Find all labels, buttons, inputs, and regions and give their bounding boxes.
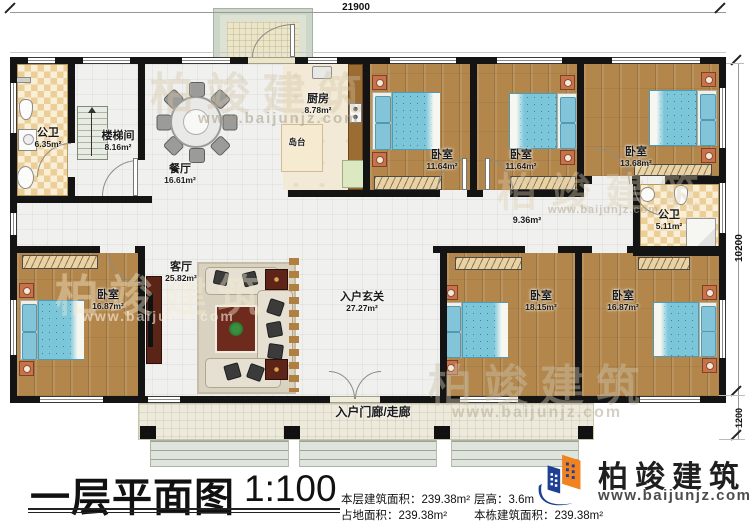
room-label-bedroom-bl: 卧室 16.87m²: [92, 289, 124, 311]
window: [40, 396, 103, 403]
room-name: 公卫: [656, 209, 682, 222]
room-label-stairs: 楼梯间 8.16m²: [102, 130, 135, 152]
porch-column: [284, 426, 300, 439]
window: [148, 396, 180, 403]
bed-pillow: [701, 306, 716, 332]
nightstand: [19, 283, 34, 298]
room-label-foyer: 入户玄关 27.27m²: [340, 291, 384, 313]
bed-pillow: [375, 123, 391, 150]
side-table: [265, 359, 288, 380]
nightstand: [560, 150, 575, 165]
title-underline: [28, 508, 340, 510]
stat-value: 239.38m²: [422, 494, 471, 506]
room-area: 9.36m²: [513, 215, 542, 225]
kitchen-sink-icon: [312, 66, 332, 79]
window: [719, 88, 726, 148]
window: [497, 57, 562, 64]
room-name: 卧室: [607, 290, 639, 303]
wall: [470, 64, 477, 197]
stove-icon: [349, 103, 362, 123]
room-area: 6.35m²: [35, 140, 62, 150]
bed-blanket: [70, 301, 84, 359]
nightstand: [702, 358, 717, 373]
room-name: 楼梯间: [102, 130, 135, 143]
window: [612, 57, 700, 64]
eave-line: [10, 52, 726, 53]
stairs-arrow: [91, 112, 92, 156]
floor-plan: 柏竣建筑 www.baijunjz.com 柏竣建筑 www.baijunjz.…: [0, 0, 750, 525]
title-scale: 1:100: [244, 468, 337, 510]
room-name: 卧室: [525, 290, 557, 303]
dimension-line: [738, 64, 739, 396]
stat-value: 239.38m²: [555, 510, 604, 522]
building-logo-icon: [536, 449, 594, 507]
room-label-island: 岛台: [288, 138, 305, 148]
room-area: 11.64m²: [505, 162, 536, 172]
room-name: 卧室: [92, 289, 124, 302]
room-label-bedroom-b1: 卧室 18.15m²: [525, 290, 557, 312]
room-label-porch: 入户门廊/走廊: [335, 406, 410, 420]
wardrobe: [374, 176, 442, 190]
bed-blanket: [426, 93, 440, 149]
stat-value: 3.6m: [509, 494, 535, 506]
brand-logo-icon: [536, 449, 594, 507]
room-name: 岛台: [288, 138, 305, 148]
room-label-bath1: 公卫 6.35m²: [35, 127, 62, 149]
dimension-ext-line: [719, 439, 745, 440]
sofa-cushion: [213, 270, 230, 287]
stat-floor-height: 层高：3.6m: [474, 491, 534, 507]
stat-label: 占地面积：: [341, 510, 399, 522]
wall: [363, 64, 370, 197]
room-name: 入户玄关: [340, 291, 384, 304]
wardrobe: [638, 257, 690, 270]
tv-icon: [148, 293, 153, 347]
page-title: 一层平面图: [30, 465, 235, 523]
wall: [558, 246, 592, 253]
bed-pillow: [701, 331, 716, 357]
room-label-corridor: 9.36m²: [513, 215, 542, 225]
sofa-cushion: [267, 343, 284, 360]
room-label-bedroom3: 卧室 13.68m²: [620, 146, 652, 168]
wall: [433, 246, 525, 253]
room-area: 25.82m²: [165, 274, 197, 284]
stat-label: 本层建筑面积：: [341, 494, 422, 506]
room-name: 公卫: [35, 127, 62, 140]
room-name: 卧室: [505, 149, 536, 162]
bed-pillow: [22, 304, 37, 332]
wall: [510, 190, 584, 197]
room-area: 16.87m²: [92, 302, 124, 312]
wall: [665, 176, 719, 184]
room-area: 18.15m²: [525, 303, 557, 313]
sink-icon: [17, 166, 34, 189]
window: [390, 57, 456, 64]
bed-blanket: [654, 303, 668, 356]
room-name: 餐厅: [164, 163, 196, 176]
steps-break: [288, 440, 300, 467]
door-leaf: [485, 158, 490, 190]
window: [10, 213, 17, 235]
dimension-label-porch: 1200: [734, 408, 744, 428]
steps: [150, 440, 592, 467]
wardrobe: [455, 257, 522, 270]
window: [83, 57, 130, 64]
nightstand: [19, 361, 34, 376]
towel-bar-icon: [15, 77, 31, 83]
dining-table-top: [183, 109, 209, 135]
dimension-ext-line: [719, 395, 745, 396]
bed-pillow: [560, 97, 576, 123]
wall: [577, 64, 584, 197]
wall: [584, 176, 592, 184]
island-counter: [281, 124, 323, 172]
room-area: 16.61m²: [164, 176, 196, 186]
stat-floor-area: 本层建筑面积：239.38m²: [341, 491, 470, 507]
brand-url: www.baijunjz.com: [598, 487, 750, 504]
wardrobe: [510, 176, 576, 190]
stat-label: 本栋建筑面积：: [474, 510, 555, 522]
stat-label: 层高：: [474, 494, 509, 506]
window: [182, 57, 230, 64]
wall: [627, 246, 719, 253]
side-table: [265, 269, 288, 290]
window: [10, 300, 17, 355]
bed-blanket: [510, 94, 524, 148]
sofa-cushion: [266, 321, 283, 338]
bed-pillow: [700, 120, 716, 146]
room-name: 卧室: [426, 149, 457, 162]
bed-pillow: [22, 332, 37, 360]
nightstand: [372, 75, 387, 90]
bed-pillow: [446, 332, 461, 358]
window: [640, 396, 700, 403]
door-leaf: [290, 24, 295, 57]
room-label-living: 客厅 25.82m²: [165, 261, 197, 283]
window: [719, 183, 726, 233]
room-label-kitchen: 厨房 8.78m²: [305, 93, 332, 115]
wall: [440, 253, 447, 396]
door-opening: [248, 57, 295, 64]
dimension-ext-line: [726, 63, 744, 64]
room-area: 11.64m²: [426, 162, 457, 172]
room-name: 入户门廊/走廊: [335, 406, 410, 420]
wall: [68, 64, 75, 143]
stat-value: 239.38m²: [399, 510, 448, 522]
window: [10, 83, 17, 133]
room-label-dining: 餐厅 16.61m²: [164, 163, 196, 185]
door-leaf: [462, 158, 467, 190]
room-area: 13.68m²: [620, 159, 652, 169]
window: [719, 300, 726, 358]
bed-pillow: [700, 94, 716, 120]
window: [308, 57, 337, 64]
porch-column: [578, 426, 593, 439]
wall: [138, 57, 145, 160]
window: [28, 57, 55, 64]
room-label-bedroom1: 卧室 11.64m²: [426, 149, 457, 171]
porch-column: [140, 426, 156, 439]
room-name: 客厅: [165, 261, 197, 274]
title-underline: [28, 512, 340, 513]
dimension-label-width: 21900: [326, 2, 386, 13]
steps-break: [436, 440, 452, 467]
nightstand: [560, 75, 575, 90]
nightstand: [701, 72, 716, 87]
room-name: 卧室: [620, 146, 652, 159]
wall: [10, 246, 100, 253]
nightstand: [372, 152, 387, 167]
stairs-arrow-head: [88, 107, 96, 113]
plant-icon: [229, 322, 243, 336]
room-area: 8.78m²: [305, 106, 332, 116]
screen-slats: [289, 258, 299, 392]
stat-building-area: 本栋建筑面积：239.38m²: [474, 507, 603, 523]
dimension-label-height: 10200: [734, 234, 745, 262]
door-leaf: [133, 158, 138, 196]
room-label-bedroom2: 卧室 11.64m²: [505, 149, 536, 171]
chair-icon: [189, 82, 205, 97]
room-area: 8.16m²: [102, 143, 135, 153]
chair-icon: [223, 115, 238, 131]
wall: [10, 196, 152, 203]
window: [460, 396, 518, 403]
room-name: 厨房: [305, 93, 332, 106]
stat-land-area: 占地面积：239.38m²: [341, 507, 447, 523]
bed-blanket: [650, 91, 664, 145]
wardrobe: [22, 255, 98, 269]
room-area: 27.27m²: [340, 304, 384, 314]
bed-pillow: [375, 96, 391, 123]
nightstand: [702, 285, 717, 300]
room-area: 5.11m²: [656, 222, 682, 232]
chair-icon: [189, 148, 205, 163]
bed-pillow: [446, 306, 461, 332]
bed-pillow: [560, 123, 576, 149]
porch-column: [434, 426, 450, 439]
room-area: 16.87m²: [607, 303, 639, 313]
bed-blanket: [494, 303, 508, 357]
wall: [575, 253, 582, 396]
shower-icon: [686, 218, 716, 247]
room-label-bath2: 公卫 5.11m²: [656, 209, 682, 231]
room-label-bedroom-b2: 卧室 16.87m²: [607, 290, 639, 312]
nightstand: [701, 148, 716, 163]
